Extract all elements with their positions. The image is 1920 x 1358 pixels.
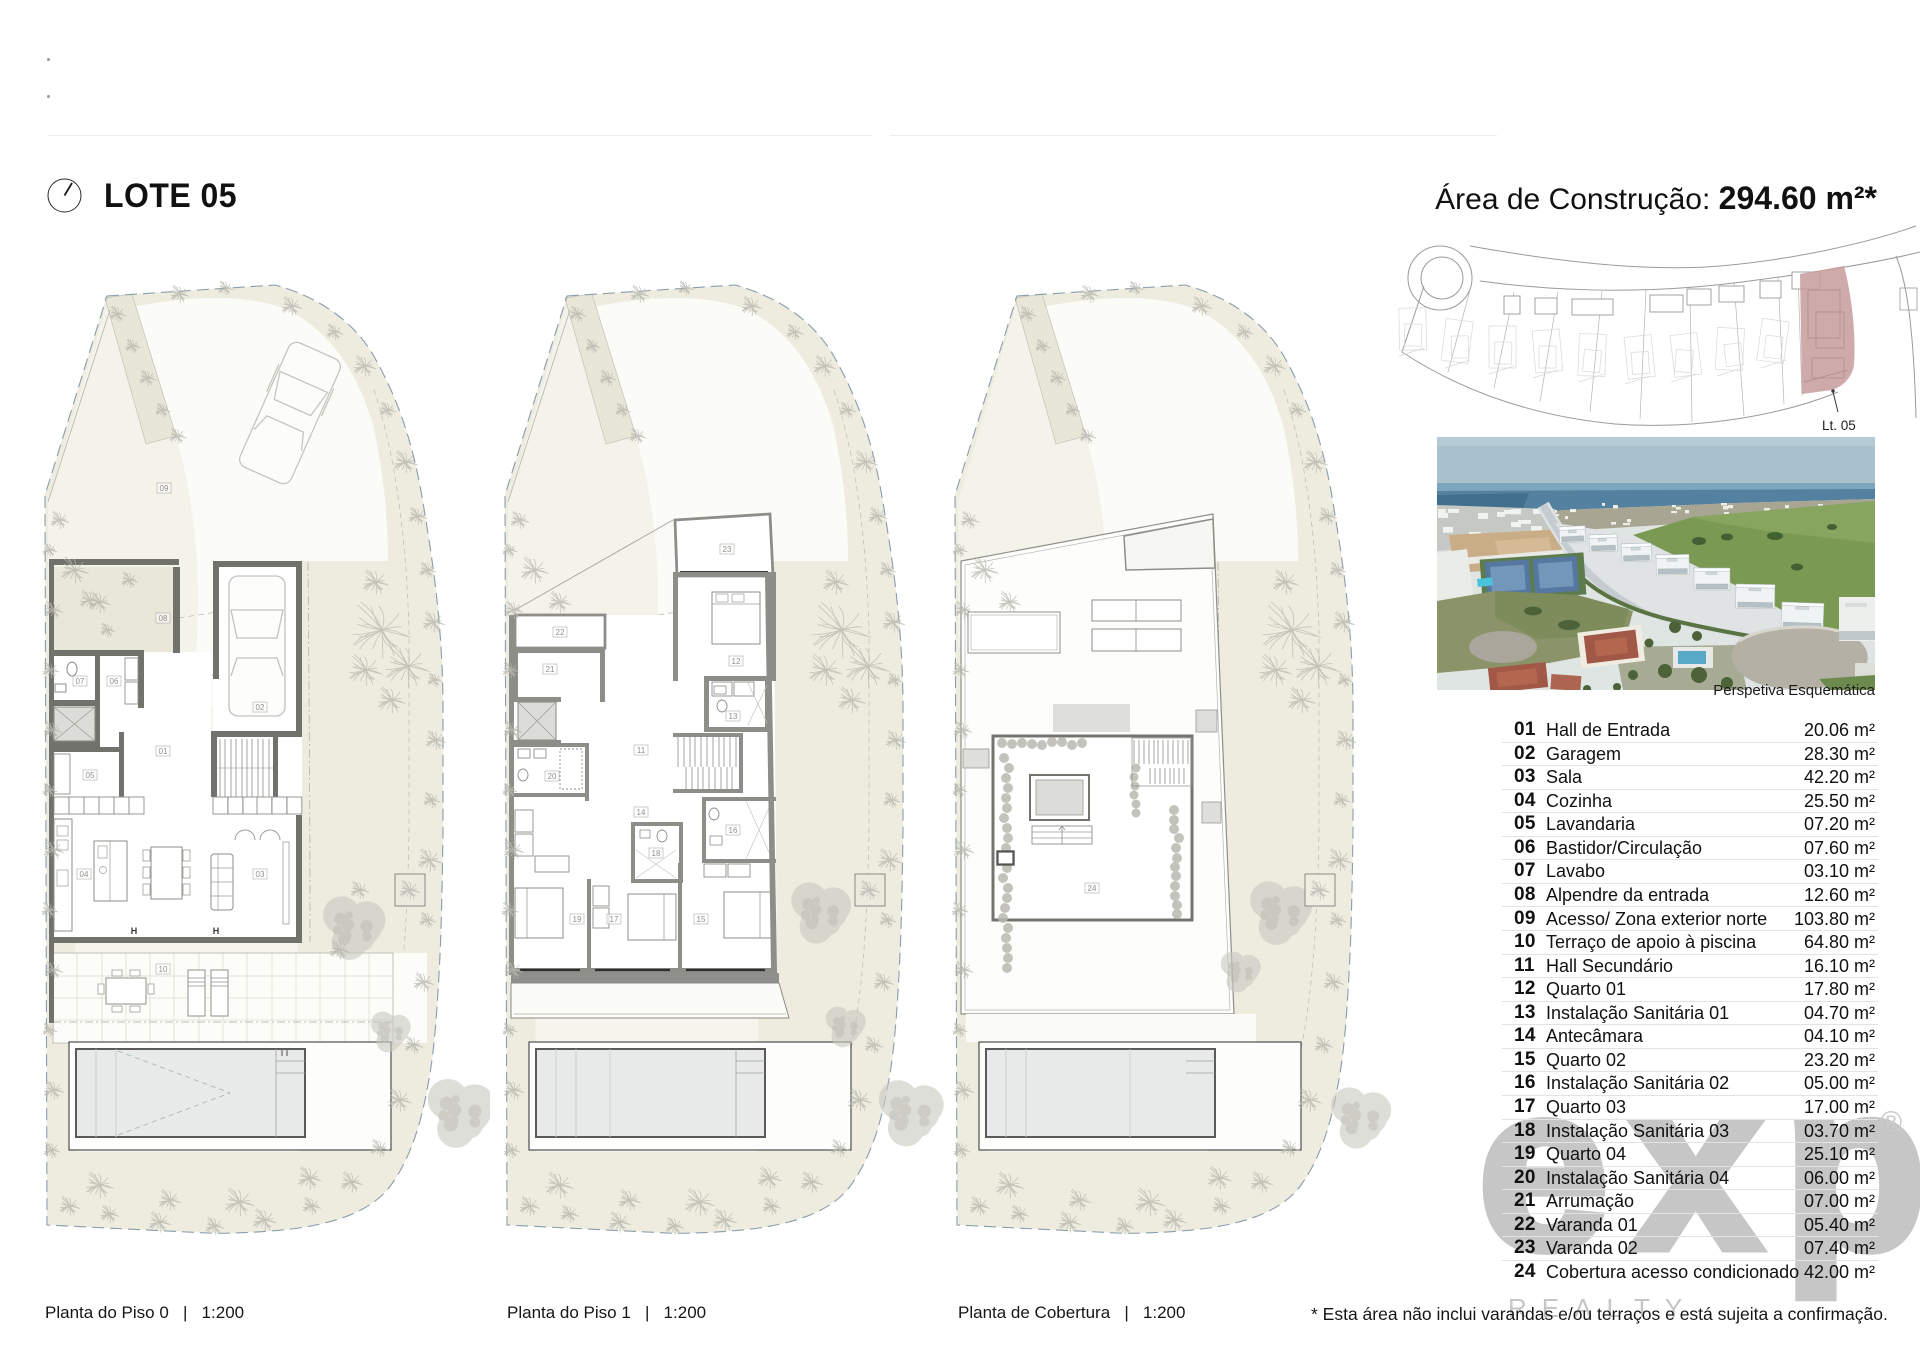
svg-text:H: H — [131, 926, 138, 936]
svg-text:16: 16 — [729, 826, 738, 835]
svg-text:10: 10 — [159, 965, 168, 974]
svg-text:18: 18 — [652, 849, 661, 858]
svg-text:05: 05 — [86, 771, 95, 780]
svg-text:06: 06 — [110, 677, 119, 686]
svg-text:17: 17 — [610, 915, 619, 924]
svg-text:02: 02 — [256, 703, 265, 712]
svg-text:13: 13 — [729, 712, 738, 721]
svg-text:23: 23 — [723, 545, 732, 554]
svg-text:19: 19 — [573, 915, 582, 924]
svg-text:03: 03 — [256, 870, 265, 879]
svg-text:Lt. 05: Lt. 05 — [1822, 418, 1856, 433]
svg-text:15: 15 — [697, 915, 706, 924]
svg-text:09: 09 — [160, 484, 169, 493]
svg-text:12: 12 — [732, 657, 741, 666]
svg-text:14: 14 — [637, 808, 646, 817]
svg-text:04: 04 — [80, 870, 89, 879]
svg-text:21: 21 — [546, 665, 555, 674]
svg-text:22: 22 — [556, 628, 565, 637]
svg-text:07: 07 — [76, 677, 85, 686]
svg-text:08: 08 — [159, 614, 168, 623]
svg-text:H: H — [213, 926, 220, 936]
svg-text:11: 11 — [637, 746, 646, 755]
svg-text:24: 24 — [1088, 884, 1097, 893]
svg-text:01: 01 — [159, 747, 168, 756]
svg-text:20: 20 — [548, 772, 557, 781]
